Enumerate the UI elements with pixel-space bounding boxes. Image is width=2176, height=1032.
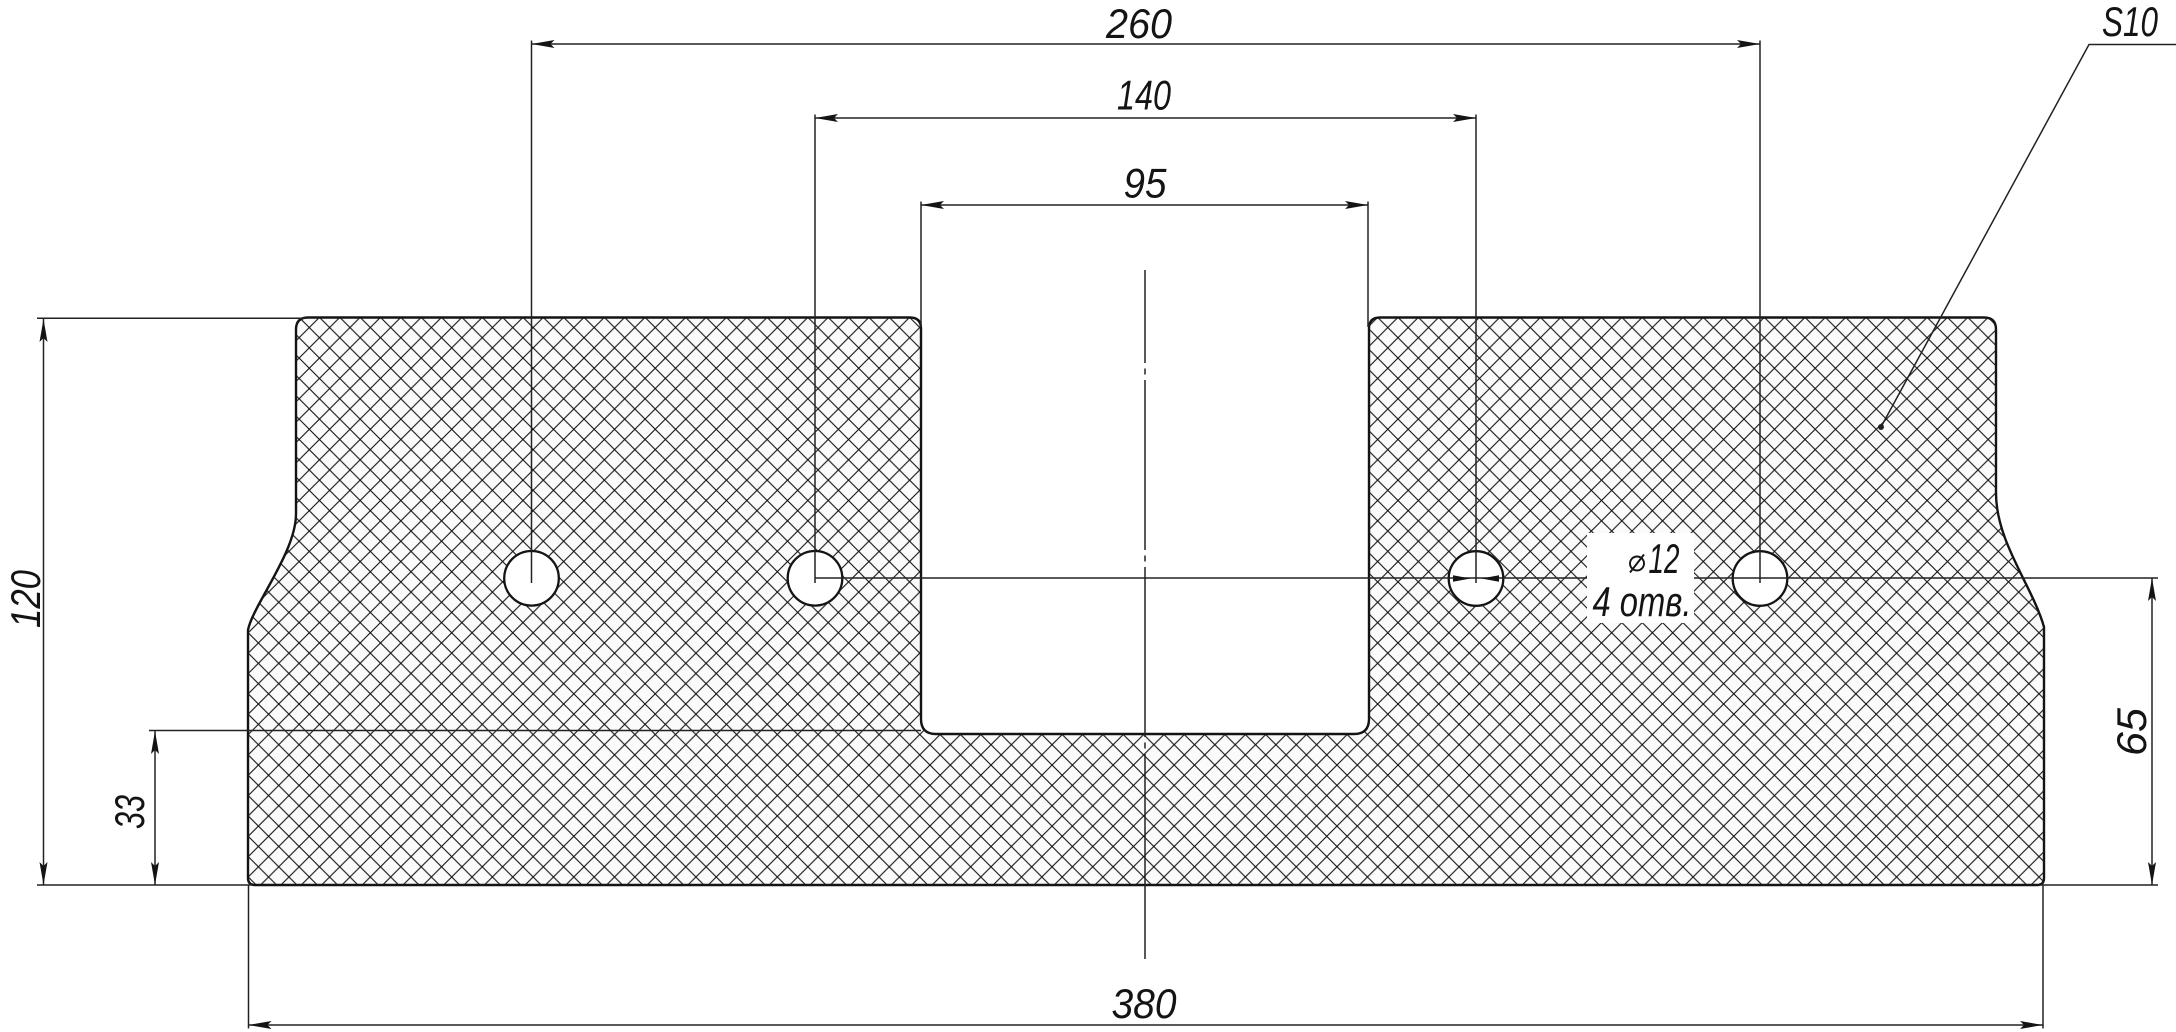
svg-text:120: 120 — [3, 569, 50, 628]
svg-text:33: 33 — [106, 795, 153, 829]
svg-text:S10: S10 — [2102, 0, 2158, 45]
svg-text:65: 65 — [2109, 708, 2156, 756]
svg-text:260: 260 — [1105, 0, 1172, 47]
svg-text:12: 12 — [1649, 535, 1680, 582]
svg-text:140: 140 — [1117, 71, 1171, 118]
svg-text:95: 95 — [1124, 159, 1168, 207]
svg-text:380: 380 — [1111, 980, 1176, 1028]
svg-text:4 отв.: 4 отв. — [1592, 578, 1691, 625]
